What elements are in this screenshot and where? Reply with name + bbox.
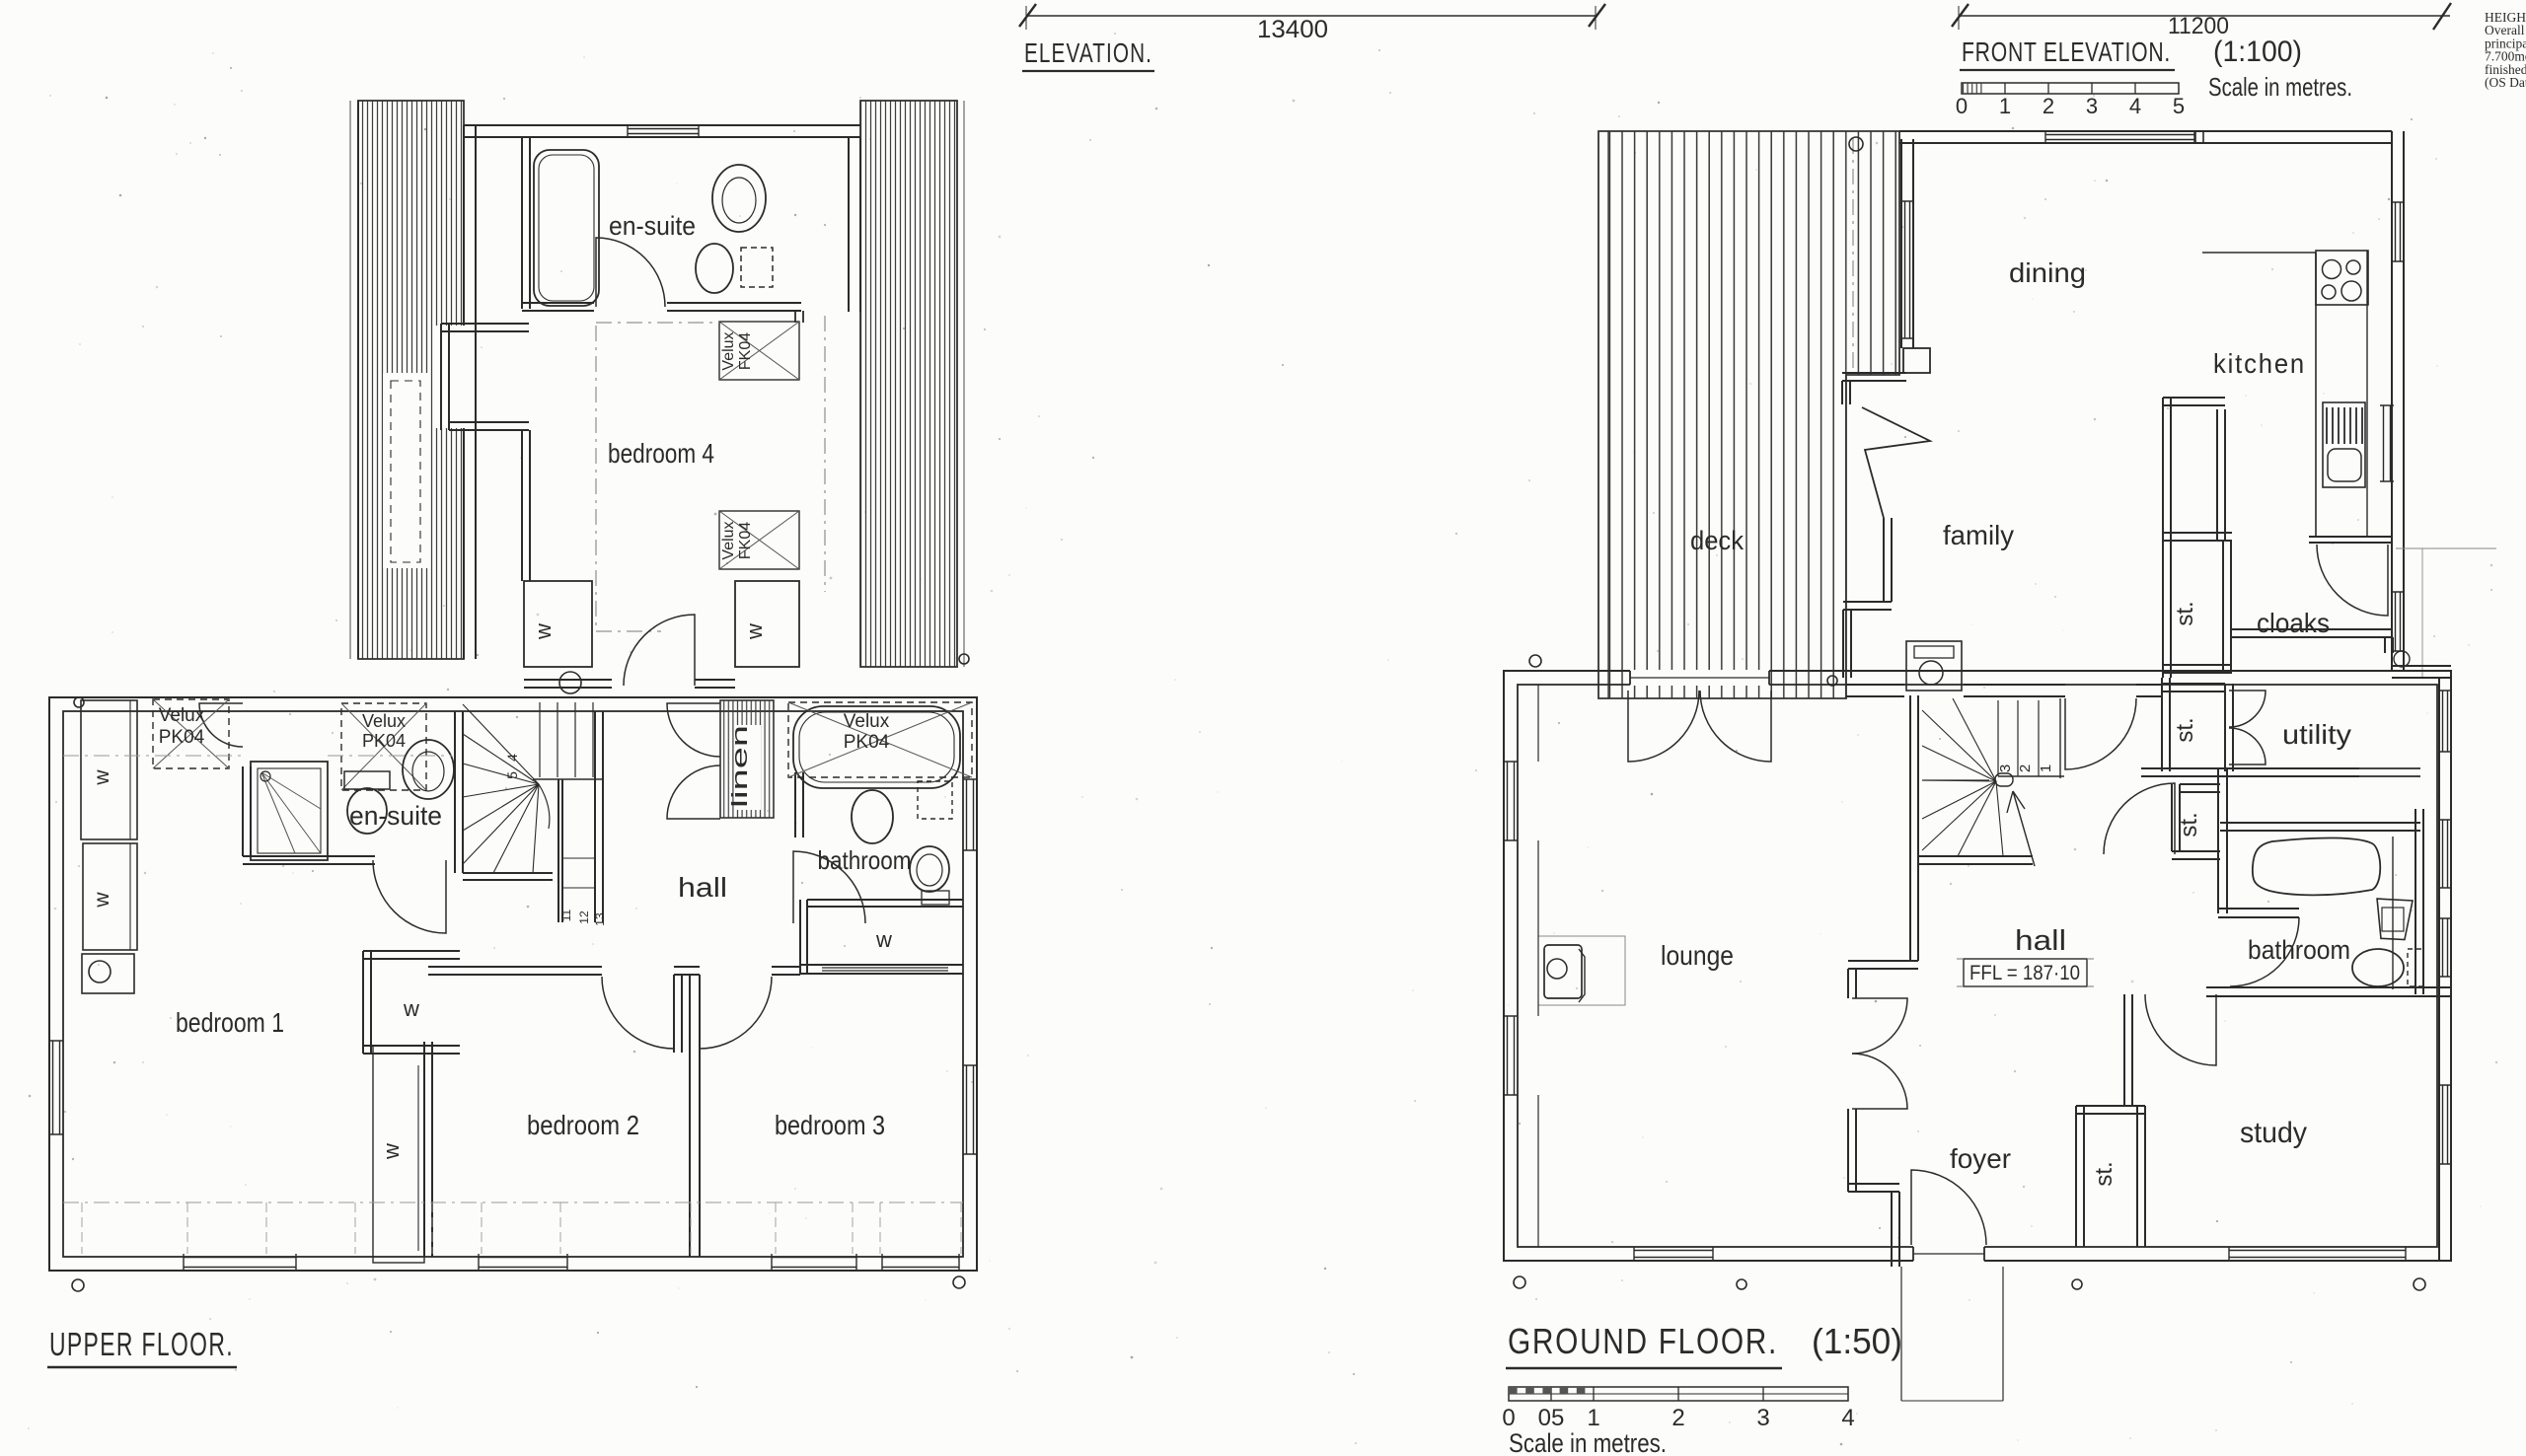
svg-text:hall: hall <box>2015 925 2066 957</box>
svg-text:11: 11 <box>559 909 573 921</box>
svg-text:study: study <box>2240 1117 2307 1149</box>
svg-text:bathroom: bathroom <box>818 845 912 875</box>
svg-text:FK04: FK04 <box>737 522 754 559</box>
svg-text:3: 3 <box>1756 1405 1769 1431</box>
svg-text:dining: dining <box>2009 257 2086 288</box>
svg-text:FRONT ELEVATION.: FRONT ELEVATION. <box>1962 36 2171 67</box>
svg-text:Velux: Velux <box>159 705 205 726</box>
svg-text:3: 3 <box>2086 94 2098 118</box>
svg-text:1: 1 <box>1587 1405 1599 1431</box>
svg-text:(1:50): (1:50) <box>1812 1321 1902 1361</box>
svg-text:3: 3 <box>1997 764 2014 772</box>
svg-text:12: 12 <box>577 910 591 924</box>
svg-text:Velux: Velux <box>720 331 737 370</box>
svg-text:PK04: PK04 <box>844 732 890 753</box>
svg-text:w: w <box>91 892 113 909</box>
svg-text:4: 4 <box>2129 94 2141 118</box>
svg-text:FK04: FK04 <box>737 332 754 370</box>
svg-text:deck: deck <box>1690 526 1744 555</box>
svg-text:bedroom 2: bedroom 2 <box>527 1110 639 1140</box>
svg-text:2: 2 <box>1672 1405 1684 1431</box>
svg-text:5: 5 <box>2173 94 2185 118</box>
svg-text:foyer: foyer <box>1950 1143 2011 1174</box>
svg-text:w: w <box>91 769 113 786</box>
svg-text:1: 1 <box>1999 94 2011 118</box>
svg-text:bathroom: bathroom <box>2248 935 2350 965</box>
svg-text:Velux: Velux <box>362 711 406 731</box>
svg-text:13400: 13400 <box>1257 16 1328 43</box>
svg-text:ELEVATION.: ELEVATION. <box>1024 37 1152 68</box>
svg-text:bedroom 4: bedroom 4 <box>608 438 714 469</box>
svg-text:GROUND FLOOR.: GROUND FLOOR. <box>1508 1321 1778 1361</box>
svg-text:en-suite: en-suite <box>349 801 442 831</box>
svg-text:13: 13 <box>593 912 607 926</box>
svg-text:w: w <box>742 623 767 640</box>
svg-text:1: 1 <box>2038 764 2054 772</box>
svg-text:UPPER FLOOR.: UPPER FLOOR. <box>49 1326 234 1362</box>
svg-text:bedroom 3: bedroom 3 <box>775 1110 885 1140</box>
svg-text:Velux: Velux <box>844 711 890 732</box>
svg-text:w: w <box>379 1143 404 1160</box>
svg-text:w: w <box>875 927 892 952</box>
svg-text:kitchen: kitchen <box>2213 348 2306 379</box>
svg-text:PK04: PK04 <box>159 727 205 748</box>
svg-text:st.: st. <box>2172 601 2198 625</box>
svg-text:lounge: lounge <box>1661 940 1734 971</box>
svg-text:0: 0 <box>1502 1405 1515 1431</box>
svg-text:hall: hall <box>678 872 727 903</box>
svg-text:Scale in metres.: Scale in metres. <box>1509 1428 1667 1456</box>
svg-text:linen: linen <box>727 725 752 808</box>
svg-text:05: 05 <box>1538 1405 1565 1431</box>
svg-text:2: 2 <box>2043 94 2054 118</box>
svg-text:(1:100): (1:100) <box>2213 36 2302 68</box>
svg-text:4: 4 <box>504 754 520 762</box>
svg-text:w: w <box>403 996 419 1021</box>
svg-text:bedroom 1: bedroom 1 <box>176 1007 284 1038</box>
svg-text:5: 5 <box>504 771 520 779</box>
svg-text:FFL = 187·10: FFL = 187·10 <box>1969 962 2080 984</box>
svg-text:Velux: Velux <box>720 521 737 559</box>
svg-text:(OS Datum: (OS Datum <box>2485 75 2526 90</box>
svg-text:4: 4 <box>1841 1405 1854 1431</box>
svg-text:family: family <box>1943 520 2014 550</box>
svg-text:st.: st. <box>2172 717 2198 742</box>
svg-text:2: 2 <box>2017 764 2034 772</box>
svg-text:PK04: PK04 <box>362 731 406 751</box>
svg-text:cloaks: cloaks <box>2257 608 2330 638</box>
svg-text:w: w <box>531 623 556 640</box>
svg-text:utility: utility <box>2282 719 2351 750</box>
svg-text:st.: st. <box>2091 1161 2117 1186</box>
svg-text:Scale in metres.: Scale in metres. <box>2208 72 2352 102</box>
svg-text:0: 0 <box>1956 94 1968 118</box>
svg-text:st.: st. <box>2176 812 2202 837</box>
svg-text:en-suite: en-suite <box>609 211 696 241</box>
